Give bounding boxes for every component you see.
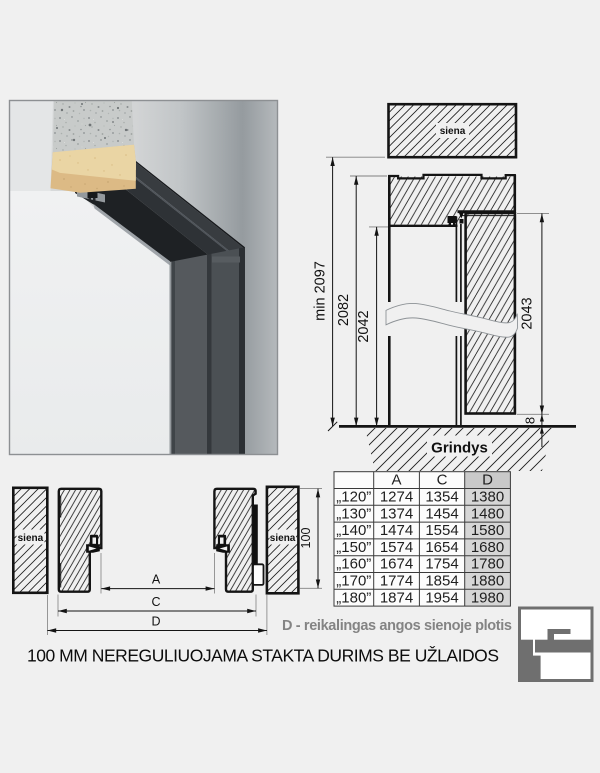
svg-text:2042: 2042 bbox=[356, 310, 372, 342]
svg-text:1854: 1854 bbox=[425, 573, 458, 590]
svg-text:1380: 1380 bbox=[471, 489, 504, 506]
svg-text:1574: 1574 bbox=[380, 539, 413, 556]
svg-text:1874: 1874 bbox=[380, 589, 413, 606]
svg-text:100 MM NEREGULIUOJAMA STAKTA D: 100 MM NEREGULIUOJAMA STAKTA DURIMS BE U… bbox=[27, 646, 499, 666]
svg-text:1654: 1654 bbox=[425, 539, 458, 556]
svg-text:„130”: „130” bbox=[336, 505, 371, 522]
svg-text:2082: 2082 bbox=[336, 294, 352, 326]
svg-text:„120”: „120” bbox=[336, 489, 371, 506]
svg-text:1980: 1980 bbox=[471, 589, 504, 606]
svg-text:1774: 1774 bbox=[380, 573, 413, 590]
svg-text:1474: 1474 bbox=[380, 522, 413, 539]
svg-text:1274: 1274 bbox=[380, 489, 413, 506]
svg-text:min 2097: min 2097 bbox=[313, 261, 329, 321]
svg-text:1480: 1480 bbox=[471, 505, 504, 522]
svg-text:„160”: „160” bbox=[336, 556, 371, 573]
svg-text:1580: 1580 bbox=[471, 522, 504, 539]
svg-text:siena: siena bbox=[440, 126, 466, 137]
svg-text:1674: 1674 bbox=[380, 556, 413, 573]
svg-text:1454: 1454 bbox=[425, 505, 458, 522]
svg-text:8: 8 bbox=[523, 417, 538, 424]
svg-text:1374: 1374 bbox=[380, 505, 413, 522]
svg-text:C: C bbox=[151, 595, 160, 609]
svg-text:Grindys: Grindys bbox=[431, 440, 488, 457]
svg-text:„170”: „170” bbox=[336, 573, 371, 590]
svg-text:A: A bbox=[391, 472, 401, 489]
svg-text:siena: siena bbox=[18, 533, 44, 544]
svg-text:1880: 1880 bbox=[471, 573, 504, 590]
svg-text:siena: siena bbox=[270, 533, 296, 544]
svg-text:1754: 1754 bbox=[425, 556, 458, 573]
svg-text:D - reikalingas angos sienoje: D - reikalingas angos sienoje plotis bbox=[282, 618, 512, 634]
svg-text:2043: 2043 bbox=[520, 297, 536, 329]
svg-text:1554: 1554 bbox=[425, 522, 458, 539]
svg-text:C: C bbox=[437, 472, 448, 489]
svg-text:„150”: „150” bbox=[336, 539, 371, 556]
svg-text:1954: 1954 bbox=[425, 589, 458, 606]
svg-text:1680: 1680 bbox=[471, 539, 504, 556]
svg-text:D: D bbox=[151, 615, 160, 629]
svg-text:1354: 1354 bbox=[425, 489, 458, 506]
svg-text:1780: 1780 bbox=[471, 556, 504, 573]
svg-text:„180”: „180” bbox=[336, 589, 371, 606]
svg-text:„140”: „140” bbox=[336, 522, 371, 539]
svg-text:A: A bbox=[152, 573, 161, 587]
svg-text:100: 100 bbox=[299, 528, 313, 549]
svg-text:D: D bbox=[482, 472, 493, 489]
